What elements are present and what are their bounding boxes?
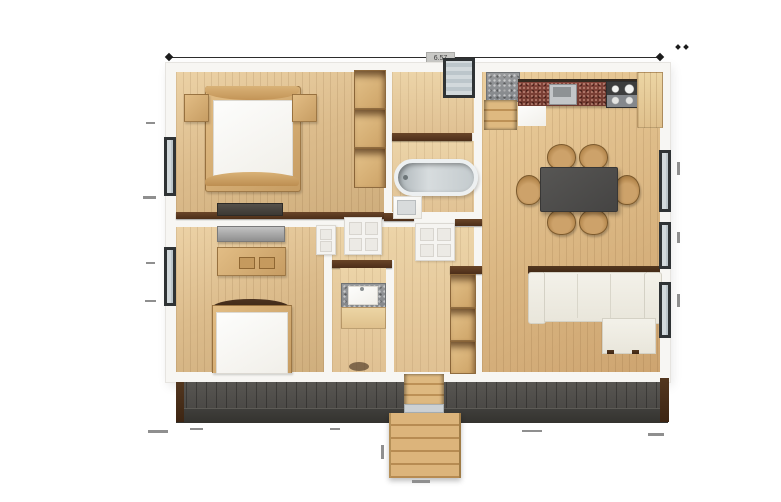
wardrobe-shelf-1 bbox=[354, 70, 386, 109]
nightstand-left bbox=[184, 94, 209, 122]
dining-chair-bottom-2 bbox=[579, 209, 608, 235]
wallcap-shelving bbox=[450, 266, 482, 274]
window-left-2 bbox=[164, 247, 176, 306]
mattress-upper bbox=[213, 100, 293, 176]
dimension-tick bbox=[145, 300, 156, 302]
deck-stairwell bbox=[404, 374, 444, 406]
sofa-seam-2 bbox=[610, 274, 611, 318]
tall-cabinet bbox=[637, 72, 663, 128]
hall-shelf-3 bbox=[450, 341, 476, 374]
media-console bbox=[217, 203, 283, 216]
dimension-tick bbox=[190, 428, 203, 430]
dimension-tick bbox=[677, 232, 680, 243]
sofa-seam-1 bbox=[577, 274, 578, 318]
dimension-tick bbox=[146, 262, 155, 264]
deck-post-left bbox=[176, 382, 184, 422]
vanity-basin bbox=[397, 200, 416, 215]
counter-end-panel bbox=[518, 106, 546, 126]
kitchen-step-up bbox=[484, 100, 517, 130]
dimension-tick bbox=[381, 445, 384, 459]
dimension-tick bbox=[648, 433, 664, 436]
footboard-upper bbox=[205, 172, 299, 186]
wardrobe-shelf-2 bbox=[354, 109, 386, 148]
hall-shelf-1 bbox=[450, 274, 476, 308]
door-panel bbox=[320, 241, 332, 252]
dimension-tick bbox=[677, 294, 680, 307]
floorplan-render: 6.57 bbox=[0, 0, 781, 502]
dimension-tick bbox=[143, 196, 156, 199]
door-panel bbox=[437, 228, 451, 241]
sofa-seat-main bbox=[544, 272, 646, 322]
door-bedroom2 bbox=[316, 225, 336, 255]
door-panel bbox=[320, 229, 332, 240]
stairwell-landing bbox=[404, 404, 444, 413]
window-right-1 bbox=[659, 150, 671, 212]
dimension-arrow-right bbox=[656, 53, 664, 61]
kitchen-sink-basin bbox=[553, 87, 571, 97]
dimension-tick bbox=[148, 430, 168, 433]
window-right-3 bbox=[659, 282, 671, 338]
gray-dresser bbox=[217, 226, 285, 242]
window-top-hallway bbox=[443, 58, 475, 98]
desk-drawer-left bbox=[239, 257, 255, 269]
door-bathroom bbox=[344, 217, 382, 255]
nightstand-right bbox=[292, 94, 317, 122]
dining-chair-bottom-1 bbox=[547, 209, 576, 235]
duvet-lower bbox=[216, 312, 288, 374]
door-panel bbox=[365, 222, 378, 235]
door-panel bbox=[349, 222, 362, 235]
dining-chair-left bbox=[516, 175, 542, 205]
window-right-2 bbox=[659, 222, 671, 269]
wallcap-wc-north bbox=[332, 260, 392, 268]
dining-table bbox=[540, 167, 618, 212]
desk-drawer-right bbox=[259, 257, 275, 269]
wc-wood-counter bbox=[341, 307, 386, 329]
deck-post-right bbox=[660, 378, 669, 422]
dimension-mark-top-right-2 bbox=[683, 44, 689, 50]
hall-shelf-2 bbox=[450, 308, 476, 341]
door-panel bbox=[420, 228, 434, 241]
wall-wc-east bbox=[386, 260, 394, 372]
dimension-mark-top-right-1 bbox=[675, 44, 681, 50]
wc-floor-fixture bbox=[349, 362, 369, 371]
door-panel bbox=[349, 238, 362, 251]
tub-drain bbox=[403, 175, 408, 180]
top-dimension-line bbox=[170, 57, 660, 58]
dimension-tick bbox=[330, 428, 340, 430]
dimension-tick bbox=[677, 162, 680, 175]
window-left-1 bbox=[164, 137, 176, 196]
dimension-tick bbox=[412, 480, 430, 483]
sofa-foot-1 bbox=[607, 350, 614, 354]
four-burner-cooktop bbox=[606, 81, 639, 108]
door-panel bbox=[365, 238, 378, 251]
door-hallway bbox=[415, 223, 455, 261]
wc-faucet bbox=[360, 287, 364, 291]
dimension-arrow-left bbox=[165, 53, 173, 61]
dimension-tick bbox=[522, 430, 542, 432]
sofa-chaise bbox=[602, 318, 656, 354]
sofa-foot-2 bbox=[632, 350, 639, 354]
corner-counter bbox=[486, 72, 520, 102]
wardrobe-shelf-3 bbox=[354, 148, 386, 188]
wallcap-bathroom-south-right bbox=[455, 219, 482, 226]
dimension-tick bbox=[146, 122, 155, 124]
wallcap-bathroom-north bbox=[392, 133, 472, 141]
door-panel bbox=[437, 244, 451, 257]
entry-staircase bbox=[389, 413, 461, 478]
door-panel bbox=[420, 244, 434, 257]
